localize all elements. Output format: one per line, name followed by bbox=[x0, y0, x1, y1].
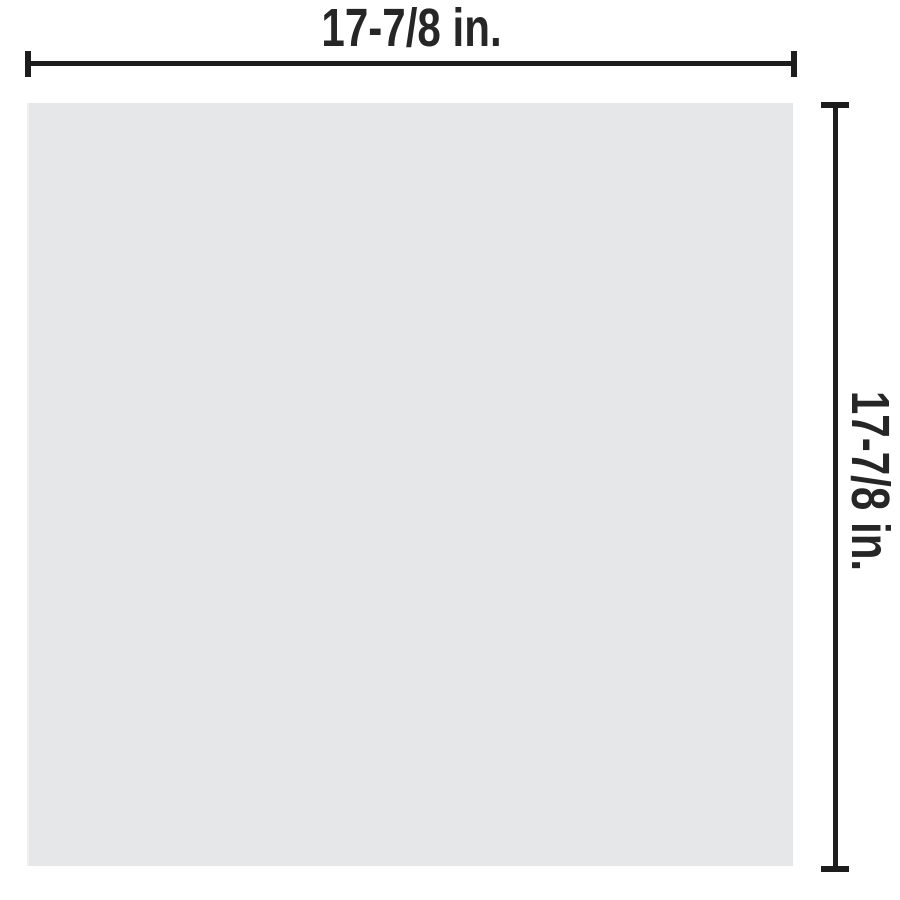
width-dimension-line bbox=[27, 61, 795, 66]
height-dimension-line bbox=[833, 105, 838, 870]
height-dimension-label: 17-7/8 in. bbox=[841, 365, 899, 596]
height-dimension-top-endcap bbox=[821, 102, 849, 108]
product-panel bbox=[27, 103, 793, 866]
width-dimension-label: 17-7/8 in. bbox=[27, 0, 797, 57]
dimension-diagram: 17-7/8 in. 17-7/8 in. bbox=[0, 0, 900, 900]
height-dimension-bottom-endcap bbox=[821, 866, 849, 872]
width-dimension-left-endcap bbox=[25, 51, 31, 77]
width-dimension-text: 17-7/8 in. bbox=[322, 0, 502, 57]
height-dimension-text: 17-7/8 in. bbox=[841, 391, 899, 571]
width-dimension-right-endcap bbox=[791, 51, 797, 77]
